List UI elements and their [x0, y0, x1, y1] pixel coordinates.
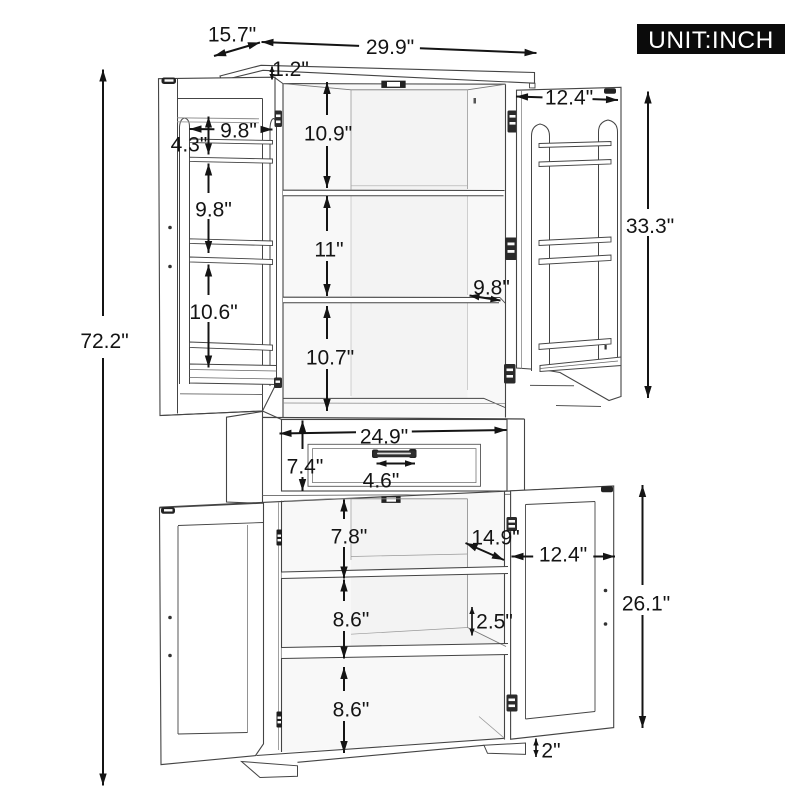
svg-text:9.8": 9.8" [220, 120, 257, 143]
svg-text:14.9": 14.9" [471, 527, 519, 550]
svg-text:4.6": 4.6" [363, 470, 400, 493]
svg-text:10.6": 10.6" [189, 301, 237, 324]
svg-text:2": 2" [541, 740, 560, 763]
svg-text:7.8": 7.8" [331, 526, 368, 549]
svg-text:2.5": 2.5" [476, 611, 513, 634]
svg-text:72.2": 72.2" [80, 330, 128, 353]
svg-text:1.2": 1.2" [272, 58, 309, 81]
svg-text:11": 11" [314, 239, 343, 262]
svg-text:9.8": 9.8" [195, 199, 232, 222]
svg-text:10.9": 10.9" [304, 123, 352, 146]
svg-text:8.6": 8.6" [333, 609, 370, 632]
svg-text:12.4": 12.4" [545, 87, 593, 110]
svg-text:12.4": 12.4" [539, 544, 587, 567]
svg-text:24.9": 24.9" [360, 426, 408, 449]
svg-text:10.7": 10.7" [306, 347, 354, 370]
svg-text:7.4": 7.4" [287, 456, 324, 479]
svg-text:26.1": 26.1" [622, 593, 670, 616]
svg-text:4.3": 4.3" [171, 134, 208, 157]
svg-text:8.6": 8.6" [333, 699, 370, 722]
svg-text:15.7": 15.7" [208, 24, 256, 47]
svg-text:9.8": 9.8" [473, 277, 510, 300]
svg-text:29.9": 29.9" [366, 36, 414, 59]
svg-text:33.3": 33.3" [626, 215, 674, 238]
svg-text:UNIT:INCH: UNIT:INCH [648, 27, 774, 54]
